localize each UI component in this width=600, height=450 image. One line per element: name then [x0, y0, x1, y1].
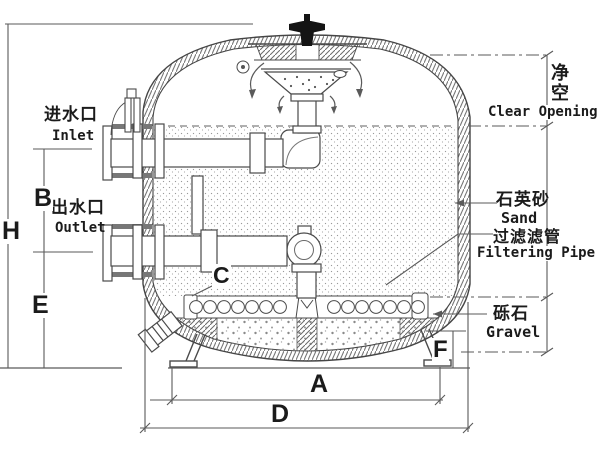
inlet-label-cn: 进水口: [44, 106, 98, 125]
gravel-label-cn: 砾石: [493, 305, 529, 324]
inlet-label-en: Inlet: [52, 129, 94, 144]
sight-glass-center: [241, 65, 245, 69]
clear-opening-label-cn: 净 空: [551, 64, 570, 104]
lateral-hub: [296, 296, 318, 318]
dim-E-label: E: [31, 293, 50, 318]
filtering-pipe-label-en: Filtering Pipe: [475, 246, 597, 261]
outlet-label-cn: 出水口: [51, 199, 105, 218]
sand-label-cn: 石英砂: [496, 191, 550, 210]
dim-A-label: A: [309, 372, 329, 397]
outlet-label-en: Outlet: [55, 221, 106, 236]
dim-B-label: B: [33, 186, 53, 211]
dim-D-label: D: [270, 402, 290, 427]
filtering-pipe-label-cn: 过滤滤管: [493, 228, 561, 246]
internal-small-pipe: [192, 176, 203, 234]
dim-A-extensions: [172, 367, 440, 404]
clear-opening-label-en: Clear Opening: [486, 105, 600, 120]
sand-filter-diagram: 进水口 Inlet 出水口 Outlet H B E C A D F 净 空 C…: [0, 0, 600, 450]
inlet-elbow: [281, 130, 320, 168]
gravel-label-en: Gravel: [486, 324, 540, 341]
sand-label-en: Sand: [501, 210, 537, 227]
dim-F-label: F: [432, 338, 449, 362]
dim-H-label: H: [1, 219, 21, 244]
nozzle-oval: [334, 71, 346, 78]
dim-C-label: C: [212, 264, 231, 287]
